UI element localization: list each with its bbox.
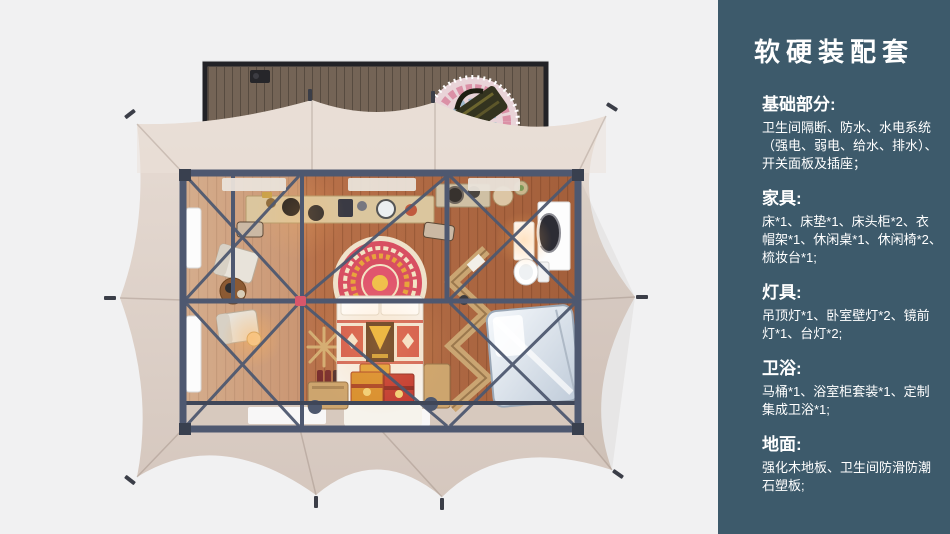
spec-section-bathroom: 卫浴: 马桶*1、浴室柜套装*1、定制 集成卫浴*1; [762,359,936,419]
bathroom-pod [486,304,580,407]
window [186,316,201,392]
spec-section-basics: 基础部分: 卫生间隔断、防水、水电系统 （强电、弱电、给水、排水）、 开关面板及… [762,95,936,173]
spec-line: 床*1、床垫*1、床头柜*2、衣 [762,213,936,231]
frame-tie [295,296,306,306]
spec-line: 石塑板; [762,477,936,495]
floor-plan-svg [0,0,718,534]
spec-heading: 卫浴: [762,359,936,379]
spec-line: 卫生间隔断、防水、水电系统 [762,119,936,137]
grill-item [250,70,270,83]
spec-line: 马桶*1、浴室柜套装*1、定制 [762,383,936,401]
sidebar-title: 软硬装配套 [732,32,936,69]
spec-line: 强化木地板、卫生间防滑防潮 [762,459,936,477]
ceiling-vents [222,178,520,191]
window [186,208,201,268]
spec-line: 帽架*1、休闲桌*1、休闲椅*2、 [762,231,936,249]
spec-line: 吊顶灯*1、卧室壁灯*2、镜前 [762,307,936,325]
spec-line: （强电、弱电、给水、排水）、 [762,137,936,155]
spec-heading: 家具: [762,189,936,209]
floor-plan-render [0,0,718,534]
spec-line: 灯*1、台灯*2; [762,325,936,343]
spec-section-furniture: 家具: 床*1、床垫*1、床头柜*2、衣 帽架*1、休闲桌*1、休闲椅*2、 梳… [762,189,936,267]
spec-section-floor: 地面: 强化木地板、卫生间防滑防潮 石塑板; [762,435,936,495]
spec-line: 开关面板及插座； [762,155,936,173]
spec-heading: 灯具: [762,283,936,303]
spec-heading: 基础部分: [762,95,936,115]
spec-line: 集成卫浴*1; [762,401,936,419]
spec-sidebar: 软硬装配套 基础部分: 卫生间隔断、防水、水电系统 （强电、弱电、给水、排水）、… [718,0,950,534]
spec-line: 梳妆台*1; [762,249,936,267]
spec-section-lighting: 灯具: 吊顶灯*1、卧室壁灯*2、镜前 灯*1、台灯*2; [762,283,936,343]
tent-canvas-shade [578,175,635,470]
spec-heading: 地面: [762,435,936,455]
